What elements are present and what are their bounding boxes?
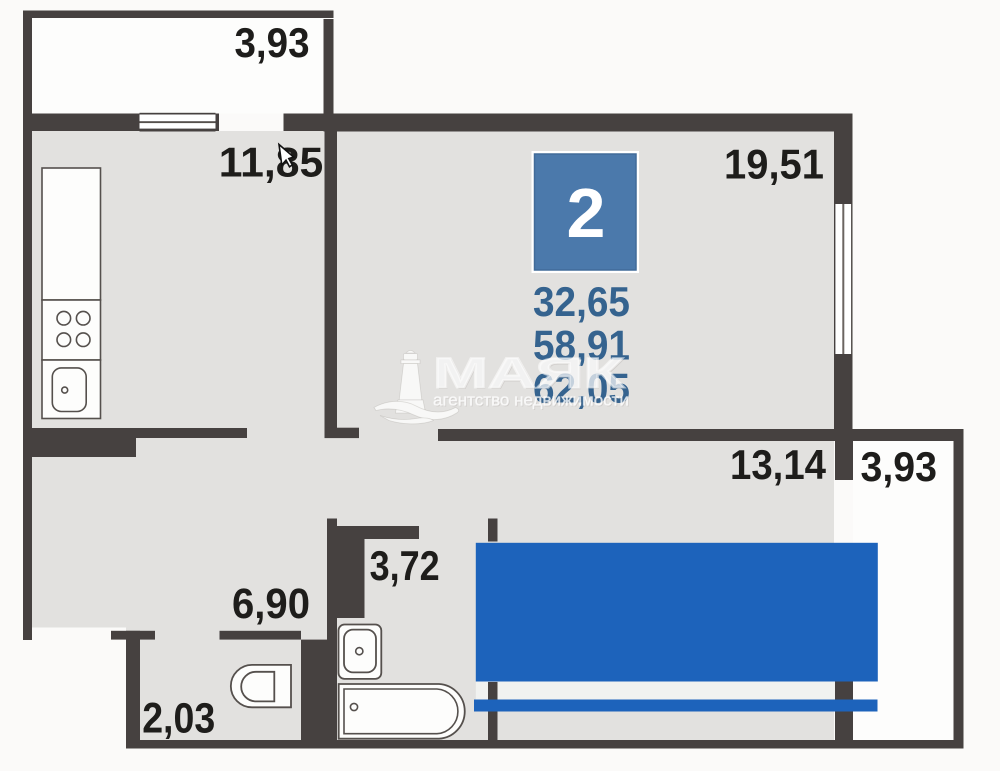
svg-text:2: 2 — [567, 174, 606, 252]
svg-text:6,90: 6,90 — [232, 580, 310, 628]
svg-text:13,14: 13,14 — [730, 441, 827, 488]
svg-text:3,93: 3,93 — [861, 443, 938, 490]
svg-text:32,65: 32,65 — [533, 278, 630, 325]
svg-text:2,03: 2,03 — [142, 695, 215, 743]
svg-text:3,72: 3,72 — [370, 542, 440, 589]
svg-text:МАЯК: МАЯК — [433, 350, 625, 398]
svg-text:3,93: 3,93 — [235, 19, 310, 66]
svg-text:11,85: 11,85 — [219, 139, 323, 186]
svg-text:агентство недвижимости: агентство недвижимости — [433, 392, 629, 410]
svg-text:19,51: 19,51 — [724, 141, 824, 188]
